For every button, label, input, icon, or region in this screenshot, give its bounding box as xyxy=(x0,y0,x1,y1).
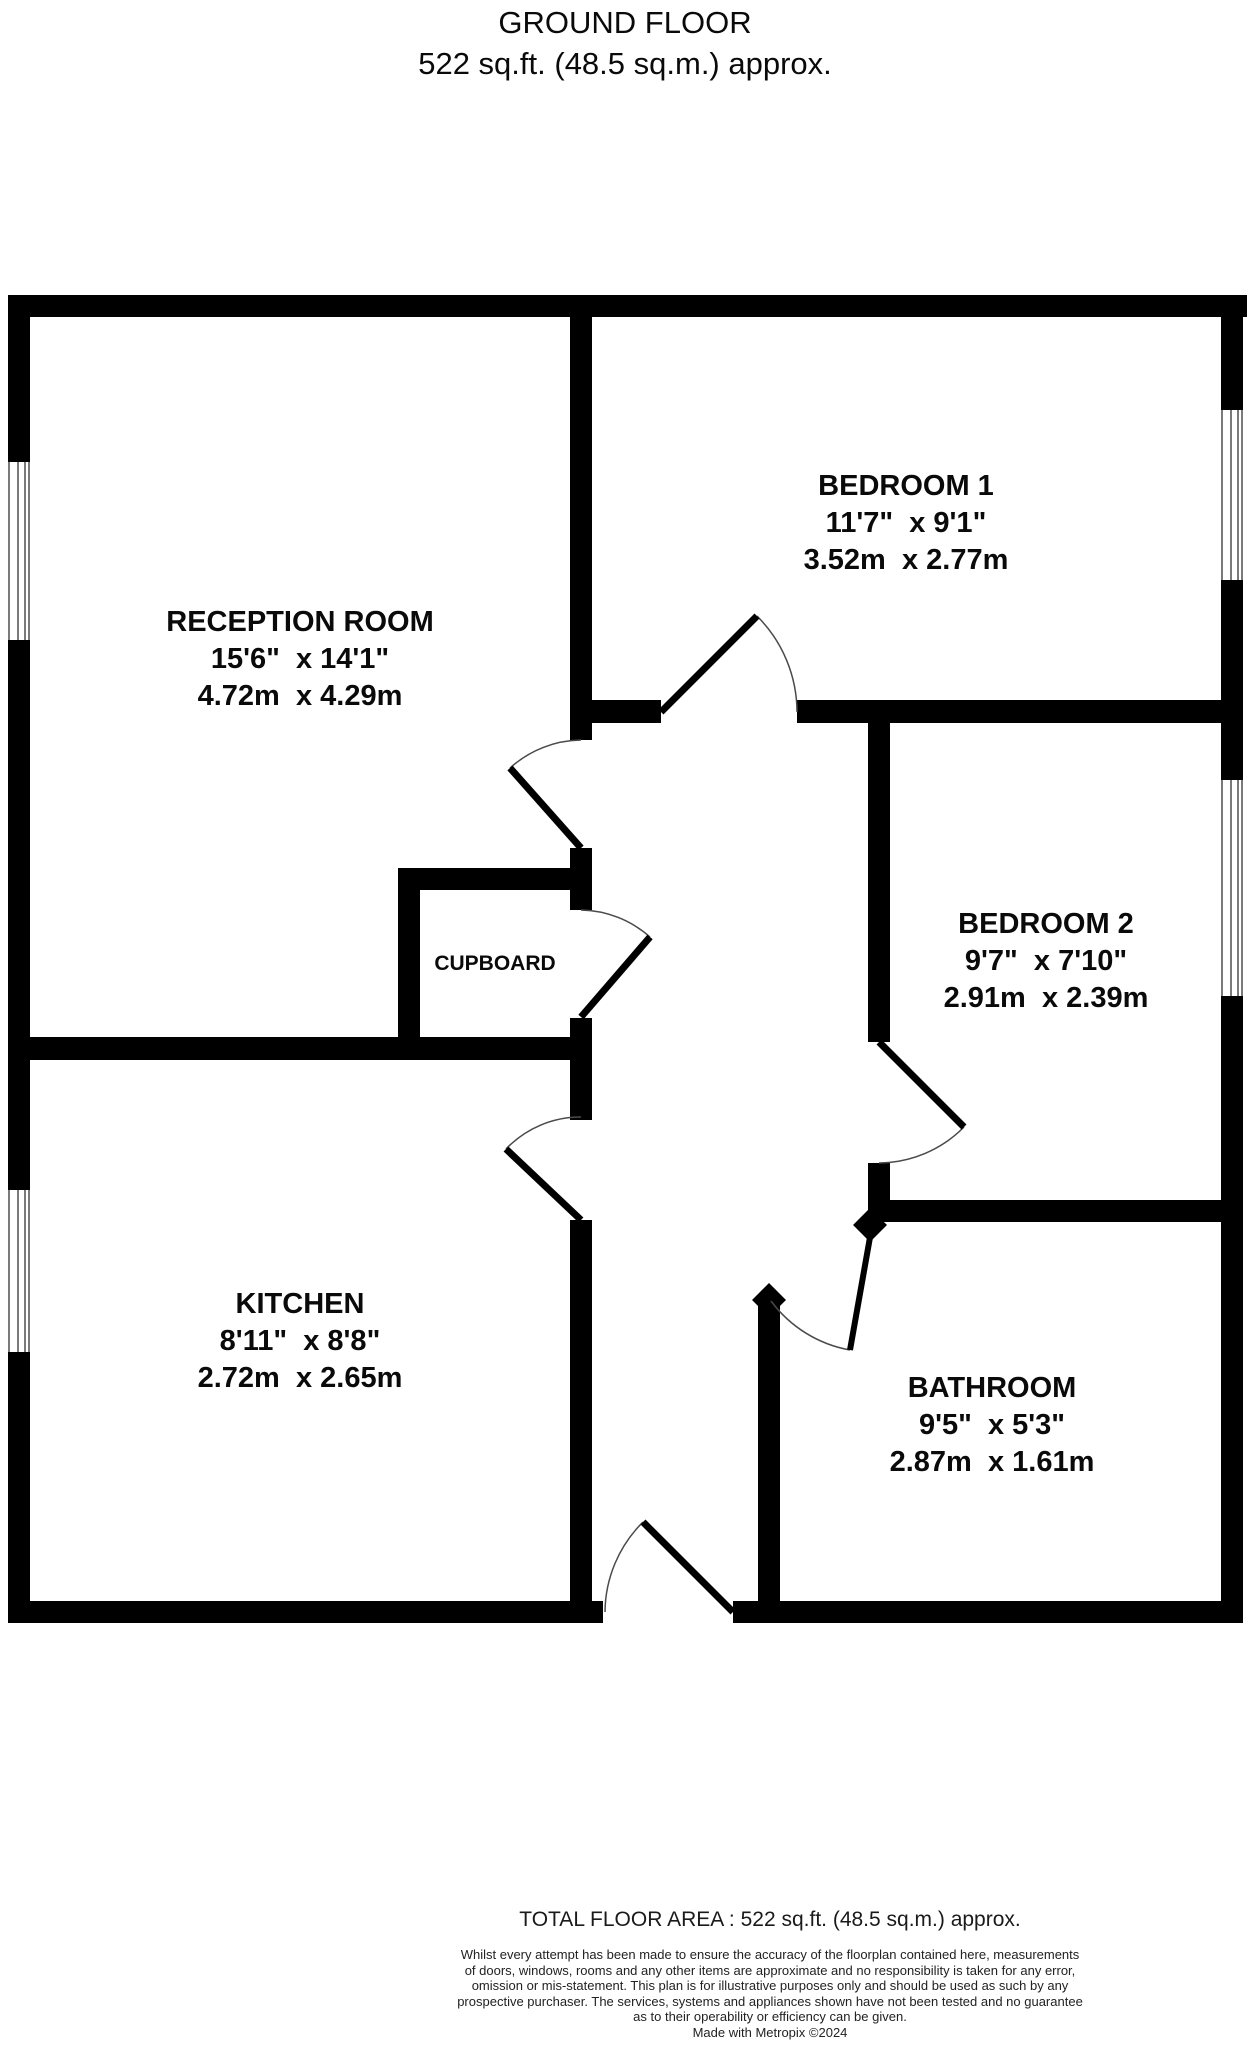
reception-room-label: RECEPTION ROOM 15'6" x 14'1" 4.72m x 4.2… xyxy=(166,604,433,715)
bathroom-imperial: 9'5" x 5'3" xyxy=(890,1407,1095,1444)
kitchen-window xyxy=(8,1190,30,1352)
wall-bed1-bed2-divider xyxy=(797,700,1243,723)
cupboard-door-arc xyxy=(581,910,650,937)
bedroom2-label: BEDROOM 2 9'7" x 7'10" 2.91m x 2.39m xyxy=(944,906,1149,1017)
wall-outer-right-upper xyxy=(1221,295,1243,410)
bedroom2-door-arc xyxy=(879,1127,964,1163)
title-floor-area: 522 sq.ft. (48.5 sq.m.) approx. xyxy=(418,43,832,84)
reception-window xyxy=(8,462,30,640)
disclaimer: Whilst every attempt has been made to en… xyxy=(410,1947,1130,2041)
kitchen-imperial: 8'11" x 8'8" xyxy=(198,1323,403,1360)
wall-outer-left-upper xyxy=(8,295,30,462)
disclaimer-line: prospective purchaser. The services, sys… xyxy=(410,1994,1130,2010)
bedroom2-name: BEDROOM 2 xyxy=(944,906,1149,943)
kitchen-door-leaf xyxy=(506,1149,581,1220)
wall-bathroom-top xyxy=(868,1200,1221,1222)
bathroom-label: BATHROOM 9'5" x 5'3" 2.87m x 1.61m xyxy=(890,1370,1095,1481)
total-floor-area: TOTAL FLOOR AREA : 522 sq.ft. (48.5 sq.m… xyxy=(519,1908,1020,1932)
reception-room-metric: 4.72m x 4.29m xyxy=(166,678,433,715)
made-with-credit: Made with Metropix ©2024 xyxy=(410,2025,1130,2041)
wall-bed1-bed2-divider-stub xyxy=(570,700,661,723)
bathroom-door-leaf xyxy=(850,1226,872,1350)
bedroom2-imperial: 9'7" x 7'10" xyxy=(944,943,1149,980)
wall-outer-bottom-right xyxy=(733,1601,1243,1623)
wall-reception-kitchen-divider xyxy=(8,1037,592,1060)
cupboard-door-leaf xyxy=(581,937,650,1017)
bathroom-door-arc xyxy=(771,1301,850,1350)
wall-outer-left-middle xyxy=(8,640,30,1190)
reception-room-name: RECEPTION ROOM xyxy=(166,604,433,641)
bedroom1-metric: 3.52m x 2.77m xyxy=(804,542,1009,579)
wall-reception-hall xyxy=(570,317,592,740)
title-floor-name: GROUND FLOOR xyxy=(418,2,832,43)
disclaimer-line: omission or mis-statement. This plan is … xyxy=(410,1978,1130,1994)
wall-outer-right-middle xyxy=(1221,580,1243,780)
wall-hall-mid xyxy=(570,1018,592,1120)
cupboard-name: CUPBOARD xyxy=(434,952,555,976)
entrance-door-arc xyxy=(605,1522,643,1612)
wall-bathroom-left xyxy=(758,1300,780,1623)
bedroom1-door-leaf xyxy=(661,616,757,712)
wall-outer-top xyxy=(8,295,1247,317)
cupboard-label: CUPBOARD xyxy=(434,952,555,976)
wall-kitchen-hall-lower xyxy=(570,1220,592,1601)
bedroom2-metric: 2.91m x 2.39m xyxy=(944,980,1149,1017)
wall-outer-left-lower xyxy=(8,1352,30,1623)
bathroom-metric: 2.87m x 1.61m xyxy=(890,1444,1095,1481)
wall-bedroom2-hall-upper xyxy=(868,723,890,1042)
kitchen-label: KITCHEN 8'11" x 8'8" 2.72m x 2.65m xyxy=(198,1286,403,1397)
bedroom1-name: BEDROOM 1 xyxy=(804,468,1009,505)
bedroom2-door-leaf xyxy=(879,1042,964,1127)
page-title: GROUND FLOOR 522 sq.ft. (48.5 sq.m.) app… xyxy=(418,2,832,84)
kitchen-metric: 2.72m x 2.65m xyxy=(198,1360,403,1397)
disclaimer-line: of doors, windows, rooms and any other i… xyxy=(410,1963,1130,1979)
bedroom2-window xyxy=(1221,780,1243,996)
wall-cupboard-top xyxy=(398,868,592,890)
wall-cupboard-left xyxy=(398,868,420,1060)
reception-door-leaf xyxy=(510,768,581,848)
wall-outer-bottom-left xyxy=(8,1601,603,1623)
bedroom1-window xyxy=(1221,410,1243,580)
reception-door-arc xyxy=(510,740,581,768)
bathroom-name: BATHROOM xyxy=(890,1370,1095,1407)
bedroom1-label: BEDROOM 1 11'7" x 9'1" 3.52m x 2.77m xyxy=(804,468,1009,579)
bedroom1-imperial: 11'7" x 9'1" xyxy=(804,505,1009,542)
reception-room-imperial: 15'6" x 14'1" xyxy=(166,641,433,678)
bedroom1-door-arc xyxy=(757,616,797,712)
disclaimer-line: Whilst every attempt has been made to en… xyxy=(410,1947,1130,1963)
disclaimer-line: as to their operability or efficiency ca… xyxy=(410,2009,1130,2025)
entrance-door-leaf xyxy=(643,1522,733,1612)
wall-outer-right-lower xyxy=(1221,996,1243,1623)
kitchen-door-arc xyxy=(506,1117,581,1149)
floorplan-page: GROUND FLOOR 522 sq.ft. (48.5 sq.m.) app… xyxy=(0,0,1251,2048)
kitchen-name: KITCHEN xyxy=(198,1286,403,1323)
